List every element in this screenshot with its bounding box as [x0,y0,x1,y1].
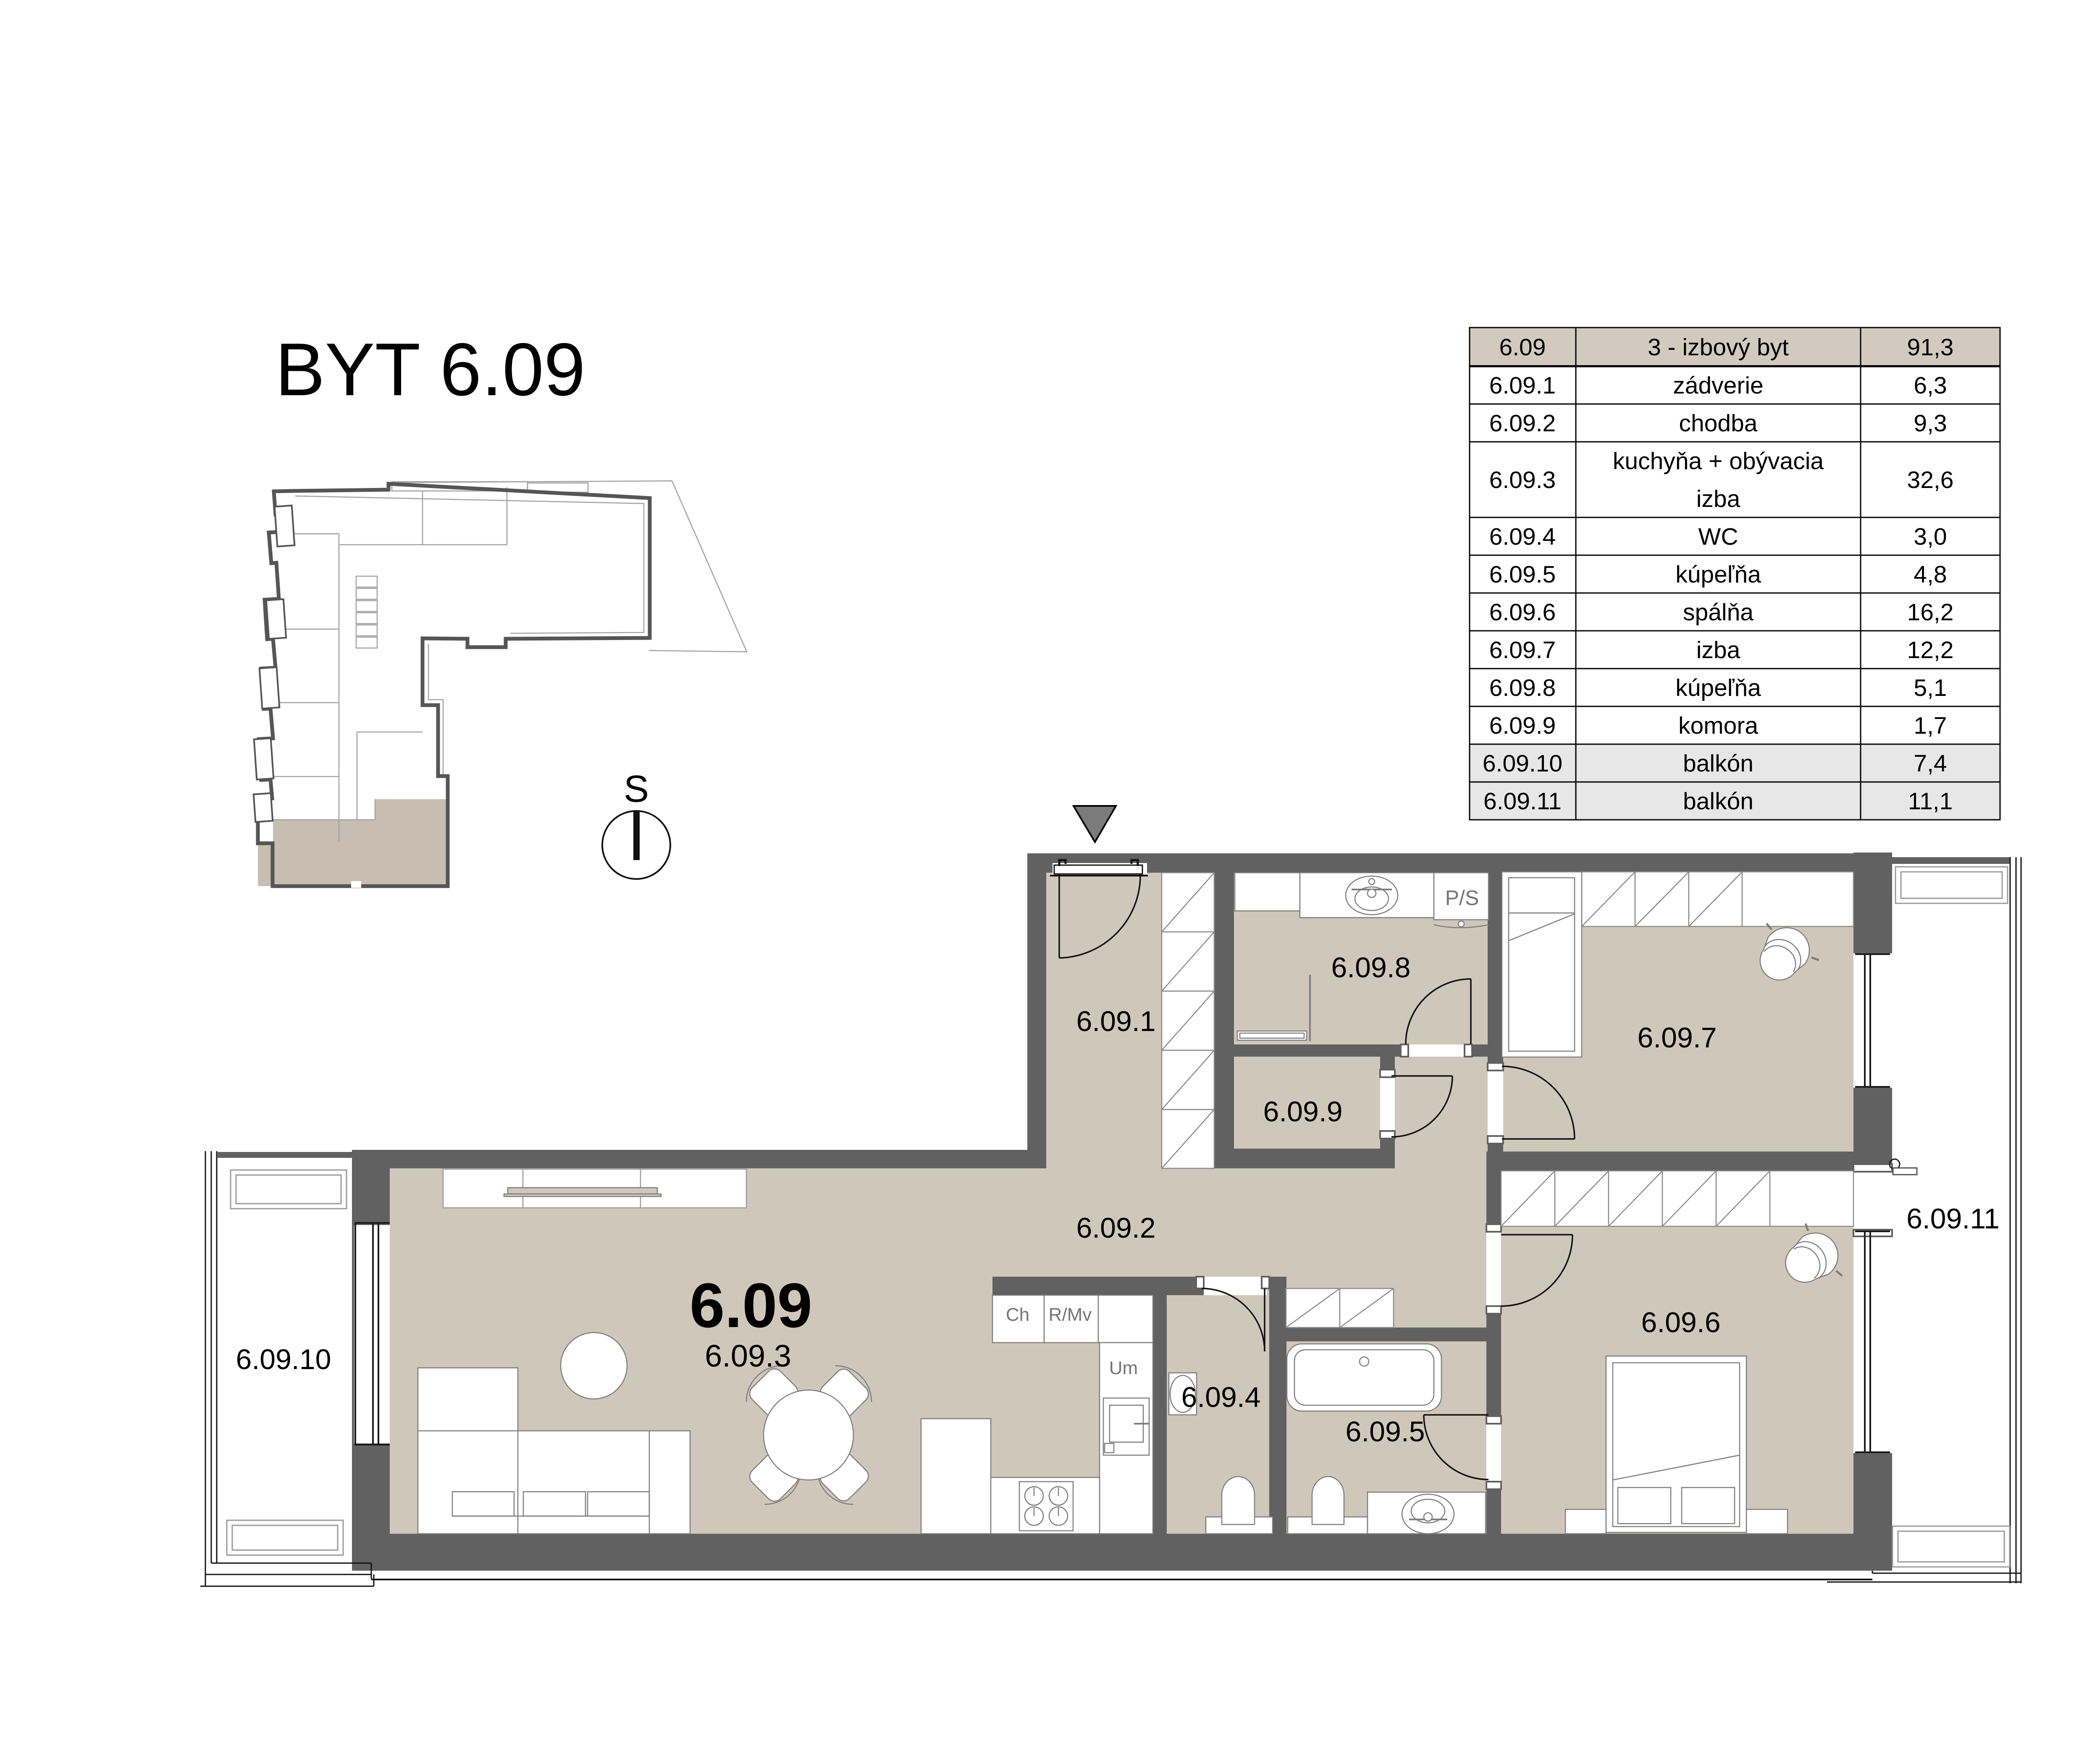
svg-text:6.09.5: 6.09.5 [1345,1416,1425,1448]
svg-text:6.09.4: 6.09.4 [1181,1381,1260,1413]
svg-text:P/S: P/S [1445,886,1479,910]
svg-text:6.09.10: 6.09.10 [236,1343,331,1375]
svg-text:6.09.1: 6.09.1 [1489,372,1556,399]
svg-text:4,8: 4,8 [1914,561,1947,588]
svg-text:balkón: balkón [1683,750,1753,777]
svg-text:6.09.10: 6.09.10 [1483,750,1562,777]
svg-text:chodba: chodba [1679,410,1757,437]
svg-text:6.09.11: 6.09.11 [1483,788,1562,815]
svg-text:91,3: 91,3 [1907,334,1954,361]
svg-text:6,3: 6,3 [1914,372,1947,399]
svg-text:WC: WC [1698,523,1738,550]
svg-text:komora: komora [1678,712,1758,739]
svg-text:6.09.6: 6.09.6 [1641,1307,1720,1338]
svg-text:6.09.3: 6.09.3 [1489,467,1556,493]
svg-text:6.09: 6.09 [1499,334,1546,361]
svg-text:7,4: 7,4 [1914,750,1947,777]
svg-text:5,1: 5,1 [1914,674,1947,701]
svg-text:spálňa: spálňa [1683,599,1753,626]
svg-text:6.09: 6.09 [690,1270,812,1341]
svg-text:6.09.8: 6.09.8 [1489,674,1556,701]
svg-text:S: S [624,768,649,810]
svg-text:32,6: 32,6 [1907,467,1954,493]
svg-text:6.09.9: 6.09.9 [1489,712,1556,739]
svg-text:6.09.1: 6.09.1 [1076,1005,1155,1037]
svg-text:6.09.8: 6.09.8 [1331,952,1410,984]
svg-text:6.09.7: 6.09.7 [1489,637,1556,664]
svg-text:6.09.3: 6.09.3 [705,1338,791,1373]
svg-text:balkón: balkón [1683,788,1753,815]
svg-text:kuchyňa + obývacia: kuchyňa + obývacia [1613,448,1824,475]
svg-text:Um: Um [1109,1358,1138,1378]
svg-text:6.09.5: 6.09.5 [1489,561,1556,588]
svg-text:3,0: 3,0 [1914,523,1947,550]
svg-text:Ch: Ch [1006,1304,1029,1325]
svg-text:11,1: 11,1 [1908,788,1953,815]
svg-text:6.09.6: 6.09.6 [1489,599,1556,626]
svg-text:zádverie: zádverie [1673,372,1763,399]
svg-text:kúpeľňa: kúpeľňa [1675,561,1761,588]
svg-text:3 - izbový byt: 3 - izbový byt [1648,334,1789,361]
svg-text:1,7: 1,7 [1914,712,1947,739]
svg-text:izba: izba [1696,485,1740,512]
svg-text:6.09.9: 6.09.9 [1263,1096,1342,1128]
svg-text:BYT 6.09: BYT 6.09 [275,328,585,411]
svg-text:kúpeľňa: kúpeľňa [1675,674,1761,701]
svg-text:6.09.7: 6.09.7 [1637,1022,1717,1054]
svg-text:izba: izba [1696,637,1740,664]
svg-text:R/Mv: R/Mv [1049,1304,1092,1325]
svg-text:12,2: 12,2 [1907,637,1954,664]
svg-text:9,3: 9,3 [1914,410,1947,437]
svg-text:6.09.4: 6.09.4 [1489,523,1556,550]
svg-text:6.09.2: 6.09.2 [1076,1212,1155,1244]
svg-text:6.09.11: 6.09.11 [1906,1203,2000,1235]
svg-text:6.09.2: 6.09.2 [1489,410,1556,437]
svg-text:16,2: 16,2 [1907,599,1954,626]
